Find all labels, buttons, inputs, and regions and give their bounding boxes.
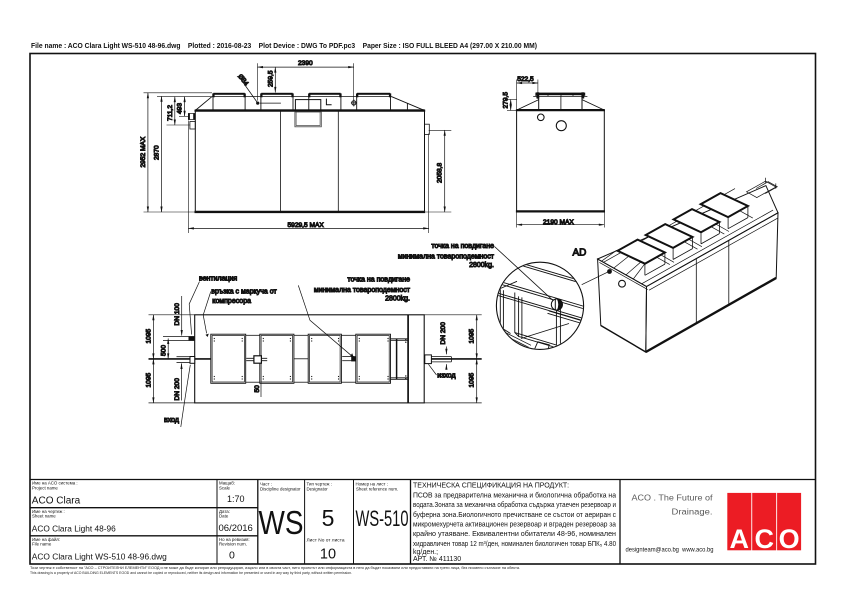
svg-text:2870: 2870 [153,145,160,160]
svg-text:Designator: Designator [307,486,329,491]
svg-text:Ø84: Ø84 [236,73,249,87]
svg-text:493: 493 [177,103,184,114]
svg-text:Scale: Scale [219,485,231,490]
svg-text:Sheet reference num.: Sheet reference num. [356,486,398,491]
svg-text:микромехурчета активационен ре: микромехурчета активационен резервоар и … [413,522,616,529]
svg-text:минимална товароподемност: минимална товароподемност [398,254,495,261]
svg-text:ПСОВ за предварителна механичн: ПСОВ за предварителна механична и биолог… [413,491,616,499]
svg-text:компресора: компресора [212,298,251,305]
svg-text:WS-510: WS-510 [356,506,409,531]
svg-text:DN 200: DN 200 [440,322,447,345]
svg-text:kg/ден.;: kg/ден.; [413,549,438,556]
svg-text:0: 0 [229,550,235,562]
svg-text:Drainage.: Drainage. [672,507,713,516]
svg-text:ACO Clara Light WS-510 48-96.d: ACO Clara Light WS-510 48-96.dwg [32,552,167,562]
svg-text:буферна зона.Биологичното преч: буферна зона.Биологичното пречистване се… [413,511,616,519]
svg-text:изход: изход [437,373,455,380]
svg-text:1095: 1095 [469,372,476,387]
svg-text:500: 500 [160,345,167,356]
svg-text:2058,8: 2058,8 [437,162,444,183]
svg-text:точка на повдигане: точка на повдигане [431,243,494,250]
svg-text:ТЕХНИЧЕСКА СПЕЦИФИКАЦИЯ НА ПРО: ТЕХНИЧЕСКА СПЕЦИФИКАЦИЯ НА ПРОДУКТ: [413,483,569,490]
svg-text:2952 MAX: 2952 MAX [140,136,147,167]
svg-text:C: C [754,524,774,554]
svg-text:Sheet name: Sheet name [32,514,56,519]
svg-text:Date: Date [219,514,229,519]
svg-text:1095: 1095 [145,328,152,343]
svg-text:1095: 1095 [145,372,152,387]
svg-text:хидравличен товар 12 m³/ден, н: хидравличен товар 12 m³/ден, номинален б… [413,540,616,548]
svg-text:точка на повдигане: точка на повдигане [347,277,410,284]
svg-text:ACO Clara Light 48-96: ACO Clara Light 48-96 [32,524,116,534]
svg-text:вход: вход [164,417,179,424]
svg-text:водата.Зоната за механична обр: водата.Зоната за механична обработка съд… [413,501,616,509]
svg-text:2190 MAX: 2190 MAX [543,219,574,226]
svg-text:5929,5 MAX: 5929,5 MAX [288,222,325,229]
svg-text:06/2016: 06/2016 [219,523,253,534]
svg-text:DN 100: DN 100 [174,303,181,326]
svg-text:File name : ACO Clara Light WS: File name : ACO Clara Light WS-510 48-96… [31,41,538,50]
svg-text:ACO . The Future of: ACO . The Future of [632,494,714,503]
svg-text:5: 5 [322,505,335,531]
svg-text:1095: 1095 [469,328,476,343]
svg-text:A: A [730,524,750,554]
svg-text:вентилация: вентилация [199,276,237,283]
svg-text:ACO Clara: ACO Clara [32,496,81,507]
svg-text:designteam@aco.bg www.aco.bg: designteam@aco.bg www.aco.bg [626,547,714,554]
svg-text:Лист No от листа: Лист No от листа [307,537,345,543]
svg-text:259,5: 259,5 [267,70,274,87]
svg-text:522,5: 522,5 [517,76,534,83]
svg-text:10: 10 [320,547,336,563]
svg-text:връзка с маркуча от: връзка с маркуча от [211,289,277,296]
svg-text:This drawing is a property of: This drawing is a property of ACO BUILDI… [30,570,352,575]
svg-text:2800kg.: 2800kg. [469,262,494,269]
svg-text:минимална товароподемност: минимална товароподемност [314,287,411,294]
svg-text:1:70: 1:70 [227,494,245,504]
svg-text:279,5: 279,5 [503,92,510,109]
svg-text:O: O [779,524,800,554]
svg-text:File name: File name [32,542,52,547]
svg-text:AD: AD [573,248,587,259]
svg-text:Project name: Project name [32,485,58,490]
svg-text:АРТ. № 411130: АРТ. № 411130 [413,556,461,563]
svg-text:50: 50 [254,385,261,393]
svg-text:WS: WS [259,505,304,542]
svg-text:2390: 2390 [298,60,313,67]
svg-text:Discipline designator: Discipline designator [260,486,301,491]
svg-text:Revision num.: Revision num. [219,542,247,547]
svg-text:DN 200: DN 200 [174,378,181,401]
svg-text:711,2: 711,2 [167,105,174,121]
svg-text:2800kg.: 2800kg. [385,296,410,303]
svg-text:крайно утаяване. Еквивалентни: крайно утаяване. Еквивалентни обитатели … [413,530,616,538]
